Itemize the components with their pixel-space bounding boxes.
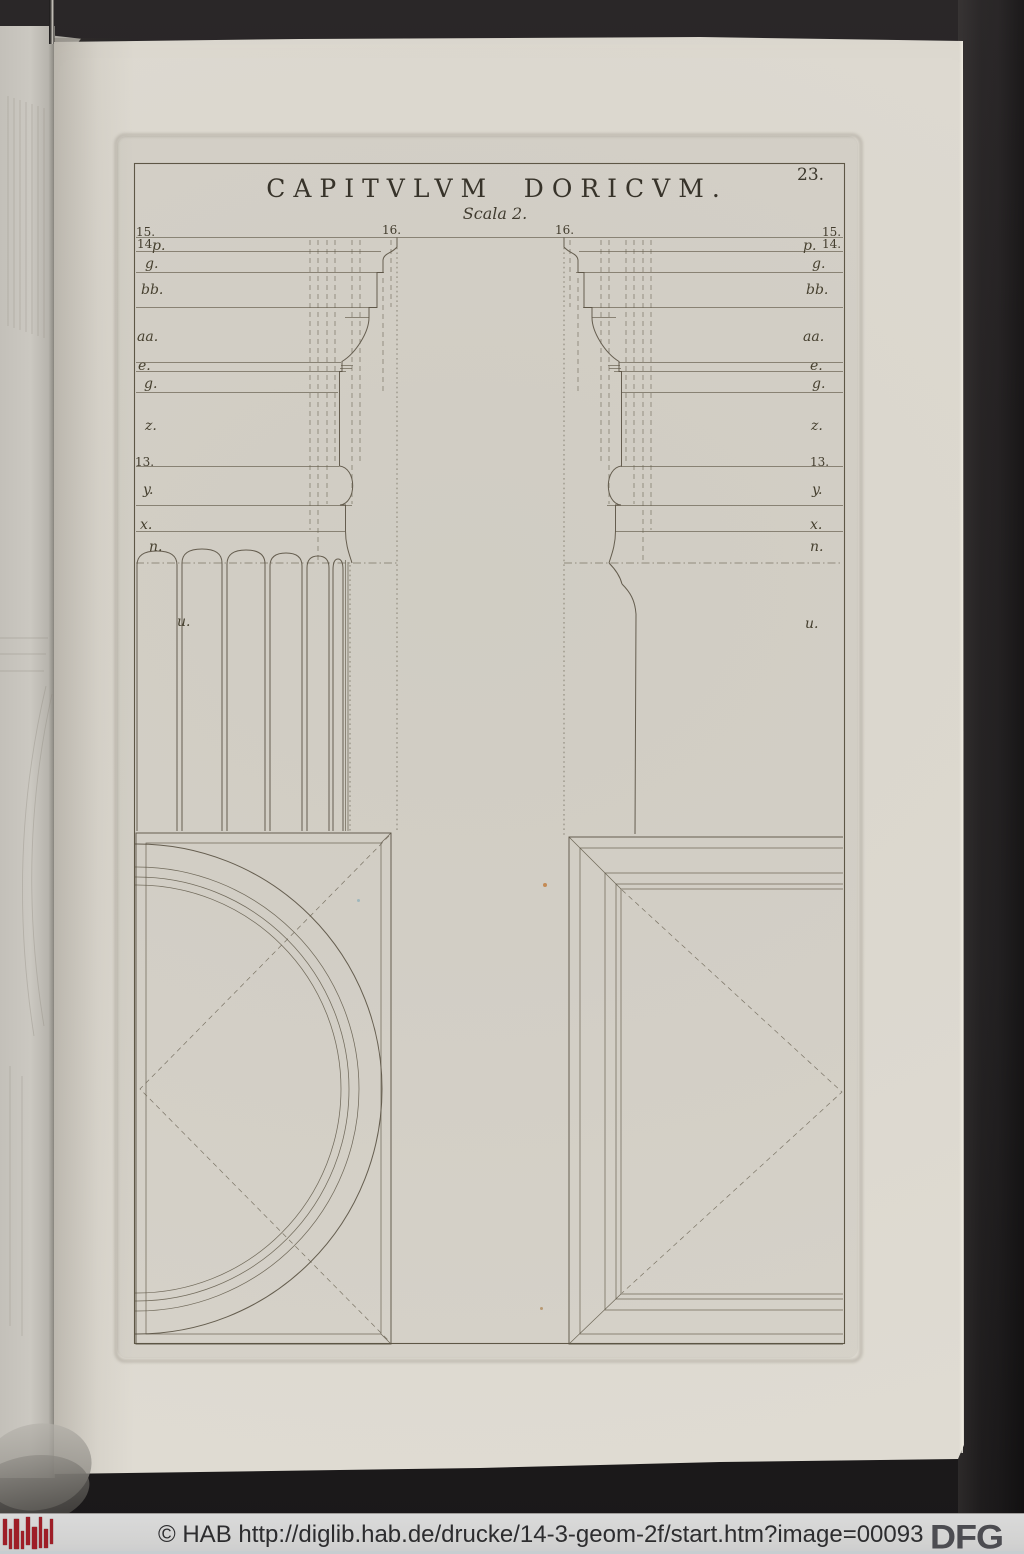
engraving: 15. 14. p. g. bb. aa. e. g. z. 13. y. x.… xyxy=(0,0,1024,1554)
measure-label: n. xyxy=(810,539,823,555)
footer-bar: © HAB http://diglib.hab.de/drucke/14-3-g… xyxy=(0,1513,1024,1554)
fluted-shaft xyxy=(137,549,348,831)
right-plan xyxy=(569,837,843,1344)
measure-label: u. xyxy=(805,616,818,632)
measure-label: x. xyxy=(810,517,822,533)
scale-label: Scala 2. xyxy=(420,204,570,223)
measure-label: aa. xyxy=(803,329,824,345)
fox-spot xyxy=(357,899,360,902)
construction-lines-right xyxy=(564,238,651,836)
scanned-page-view: 15. 14. p. g. bb. aa. e. g. z. 13. y. x.… xyxy=(0,0,1024,1554)
measure-label: z. xyxy=(810,418,823,434)
moulding-lines xyxy=(136,238,843,564)
measure-label: g. xyxy=(145,256,158,272)
right-elevation xyxy=(564,238,651,837)
page-number: 23. xyxy=(797,165,824,185)
measure-label: x. xyxy=(140,517,152,533)
measure-label: u. xyxy=(177,614,190,630)
measure-label: p. xyxy=(803,238,816,254)
measure-label: 14. xyxy=(822,237,841,251)
measure-label: g. xyxy=(812,256,825,272)
measure-label: y. xyxy=(811,482,823,498)
module-tick: 16. xyxy=(555,223,574,237)
measure-label: z. xyxy=(144,418,157,434)
measure-label: e. xyxy=(810,358,823,374)
measure-label: g. xyxy=(144,376,157,392)
fox-spot xyxy=(540,1307,543,1310)
measure-label: bb. xyxy=(141,282,163,298)
copyright-caption: © HAB http://diglib.hab.de/drucke/14-3-g… xyxy=(158,1521,918,1549)
measure-label: bb. xyxy=(806,282,828,298)
measure-label: aa. xyxy=(137,329,158,345)
measure-label: 13. xyxy=(810,455,829,469)
plate-title: CAPITVLVM DORICVM. xyxy=(262,174,732,203)
measure-label: e. xyxy=(138,358,151,374)
left-plan xyxy=(0,833,391,1344)
dfg-logo: DFG xyxy=(930,1517,1003,1554)
fox-spot xyxy=(543,883,547,887)
measure-labels-right: p. 15. 14. g. bb. aa. e. g. z. 13. y. x.… xyxy=(803,225,841,632)
smooth-shaft xyxy=(609,563,636,834)
color-calibration-bars xyxy=(3,1514,55,1554)
measure-label: g. xyxy=(812,376,825,392)
measure-label: n. xyxy=(149,539,162,555)
left-elevation xyxy=(137,238,397,833)
measure-label: 13. xyxy=(135,455,154,469)
module-tick: 16. xyxy=(382,223,401,237)
construction-lines-left xyxy=(310,238,397,832)
measure-label: p. xyxy=(152,238,165,254)
measure-label: y. xyxy=(142,482,154,498)
plate-frame xyxy=(135,164,845,1344)
